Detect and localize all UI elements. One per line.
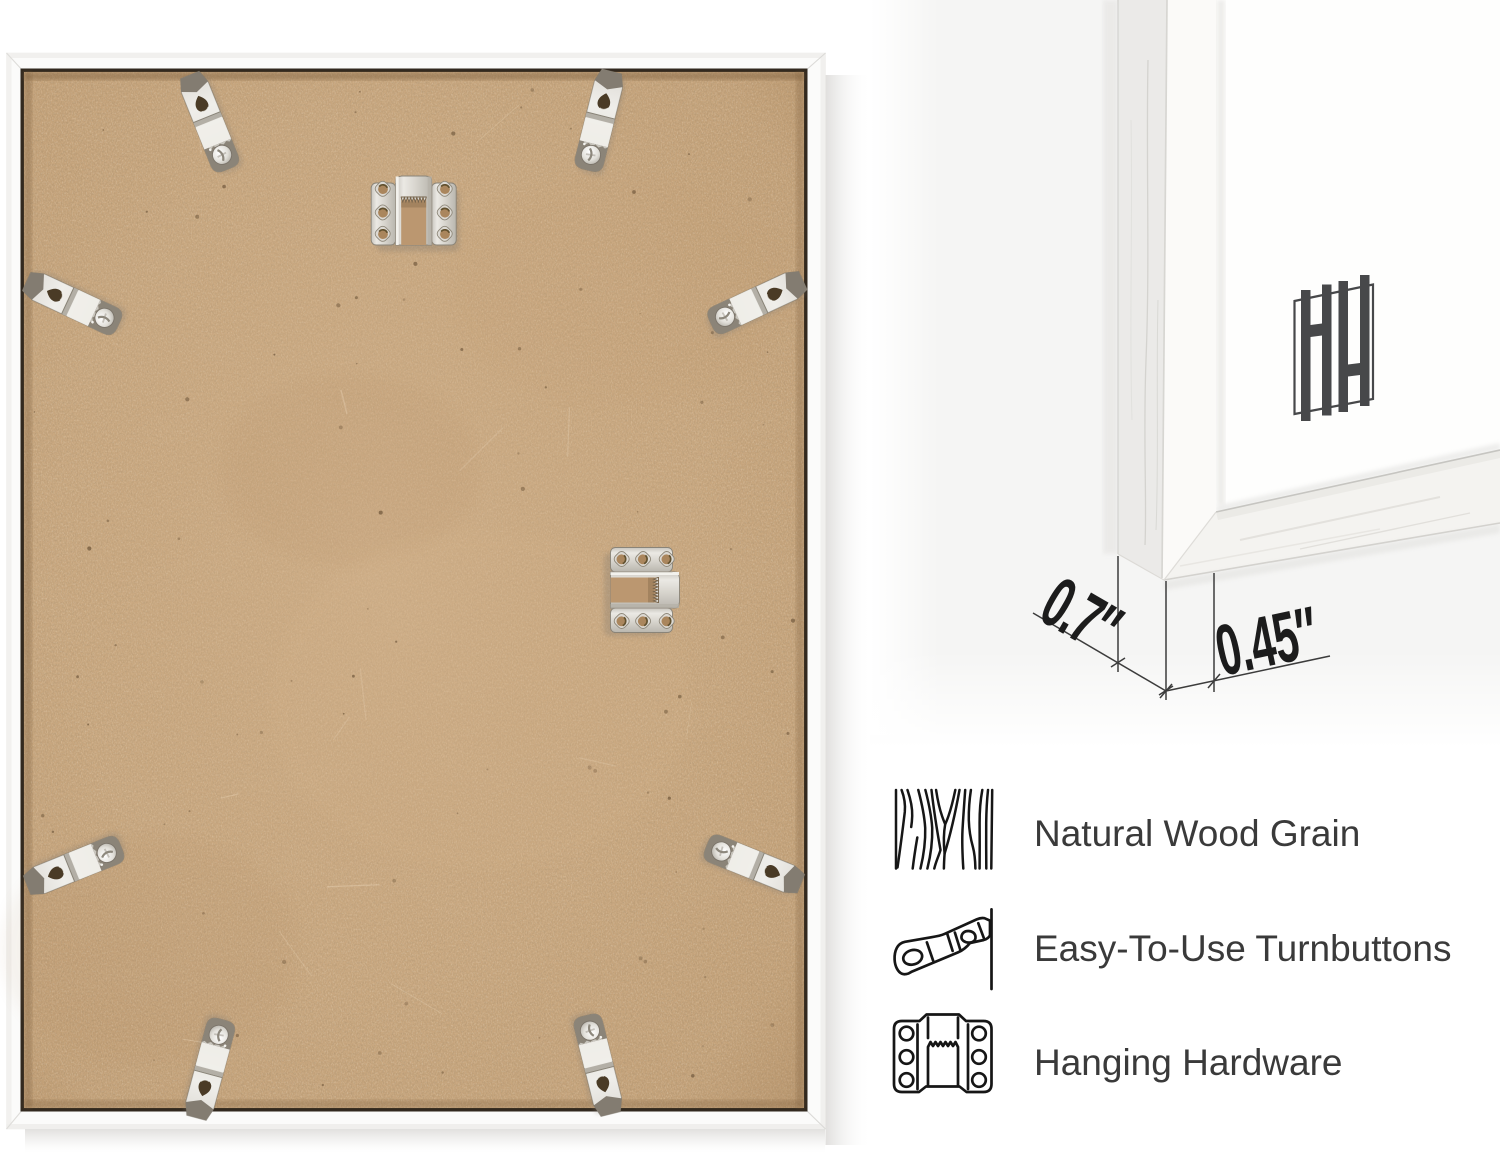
- svg-text:Natural Wood Grain: Natural Wood Grain: [1034, 813, 1360, 854]
- svg-text:Hanging Hardware: Hanging Hardware: [1034, 1042, 1343, 1083]
- svg-text:Easy-To-Use Turnbuttons: Easy-To-Use Turnbuttons: [1034, 928, 1451, 969]
